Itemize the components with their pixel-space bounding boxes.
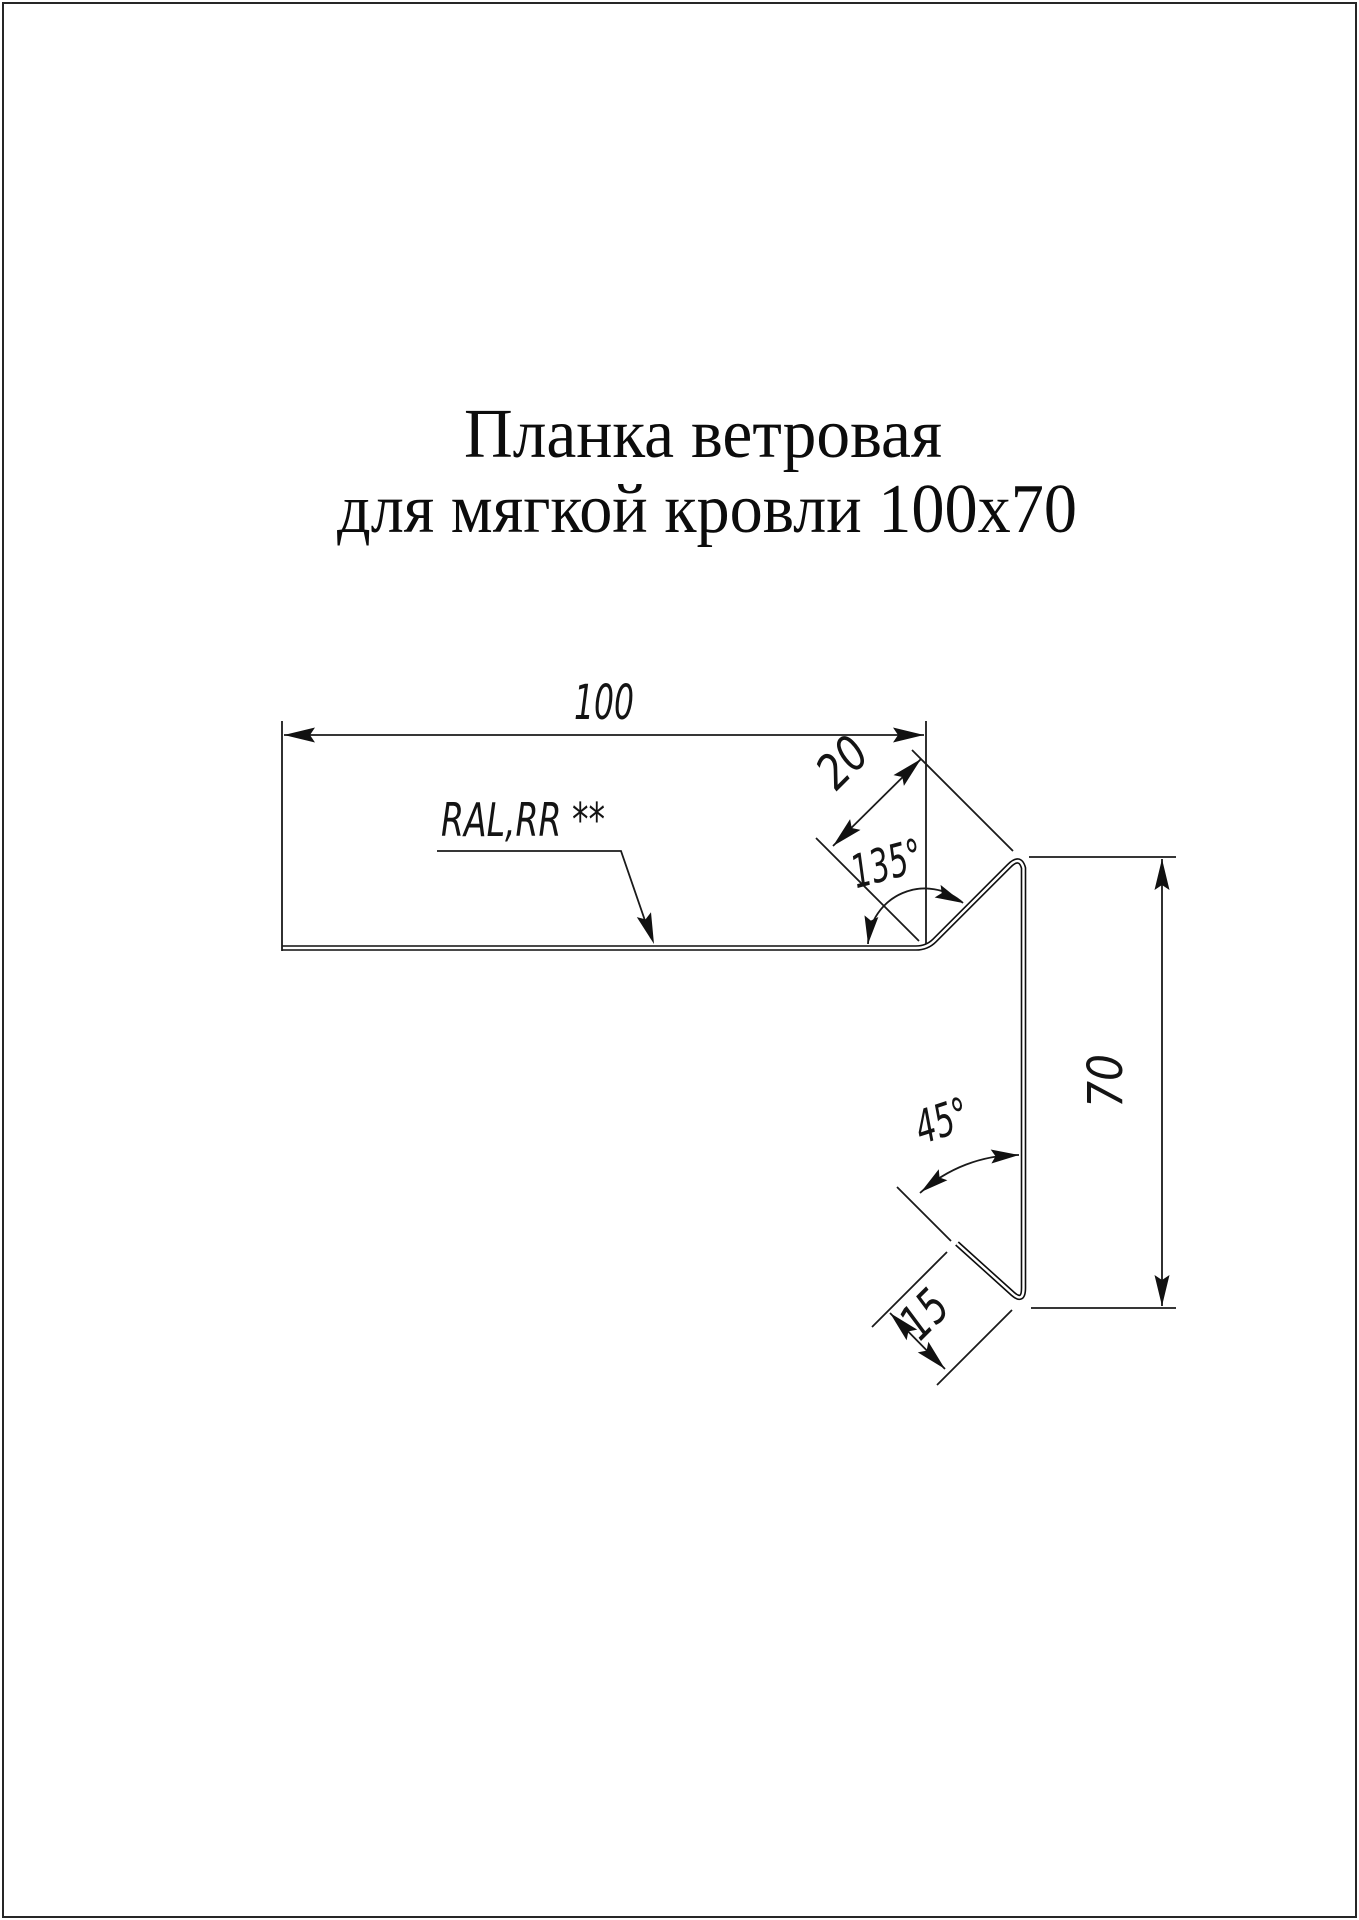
arc-arrowhead xyxy=(917,1169,948,1197)
angle-45-arc xyxy=(920,1155,1019,1193)
profile-outline xyxy=(282,861,1024,1297)
dim-20-label: 20 xyxy=(805,725,880,800)
angle-45-label: 45° xyxy=(908,1087,976,1155)
dim-100-label: 100 xyxy=(574,675,634,731)
angle-45: 45° xyxy=(897,1087,1019,1241)
drawing-sheet: { "page": { "background": "#ffffff", "bo… xyxy=(0,0,1359,1920)
dim-70-label: 70 xyxy=(1078,1054,1134,1108)
material-label: RAL,RR ** xyxy=(441,793,605,847)
extension-line-top xyxy=(912,750,1013,851)
arc-arrowhead xyxy=(861,915,878,944)
arc-arrowhead xyxy=(935,885,966,910)
material-leader: RAL,RR ** xyxy=(437,793,661,946)
technical-drawing: Планка ветровая для мягкой кровли 100х70… xyxy=(0,0,1359,1920)
leader-arrowhead xyxy=(637,912,661,946)
dim-70: 70 xyxy=(1029,857,1176,1308)
arc-arrowhead xyxy=(991,1148,1020,1163)
profile-sheet-stroke xyxy=(282,861,1024,1297)
hem-extension-line xyxy=(897,1187,951,1241)
leader-line xyxy=(437,851,651,938)
profile-sheet-core xyxy=(282,861,1024,1297)
page-title-line1: Планка ветровая xyxy=(464,396,942,473)
page-title-line2: для мягкой кровли 100х70 xyxy=(337,471,1077,548)
dim-15-label: 15 xyxy=(889,1279,961,1351)
